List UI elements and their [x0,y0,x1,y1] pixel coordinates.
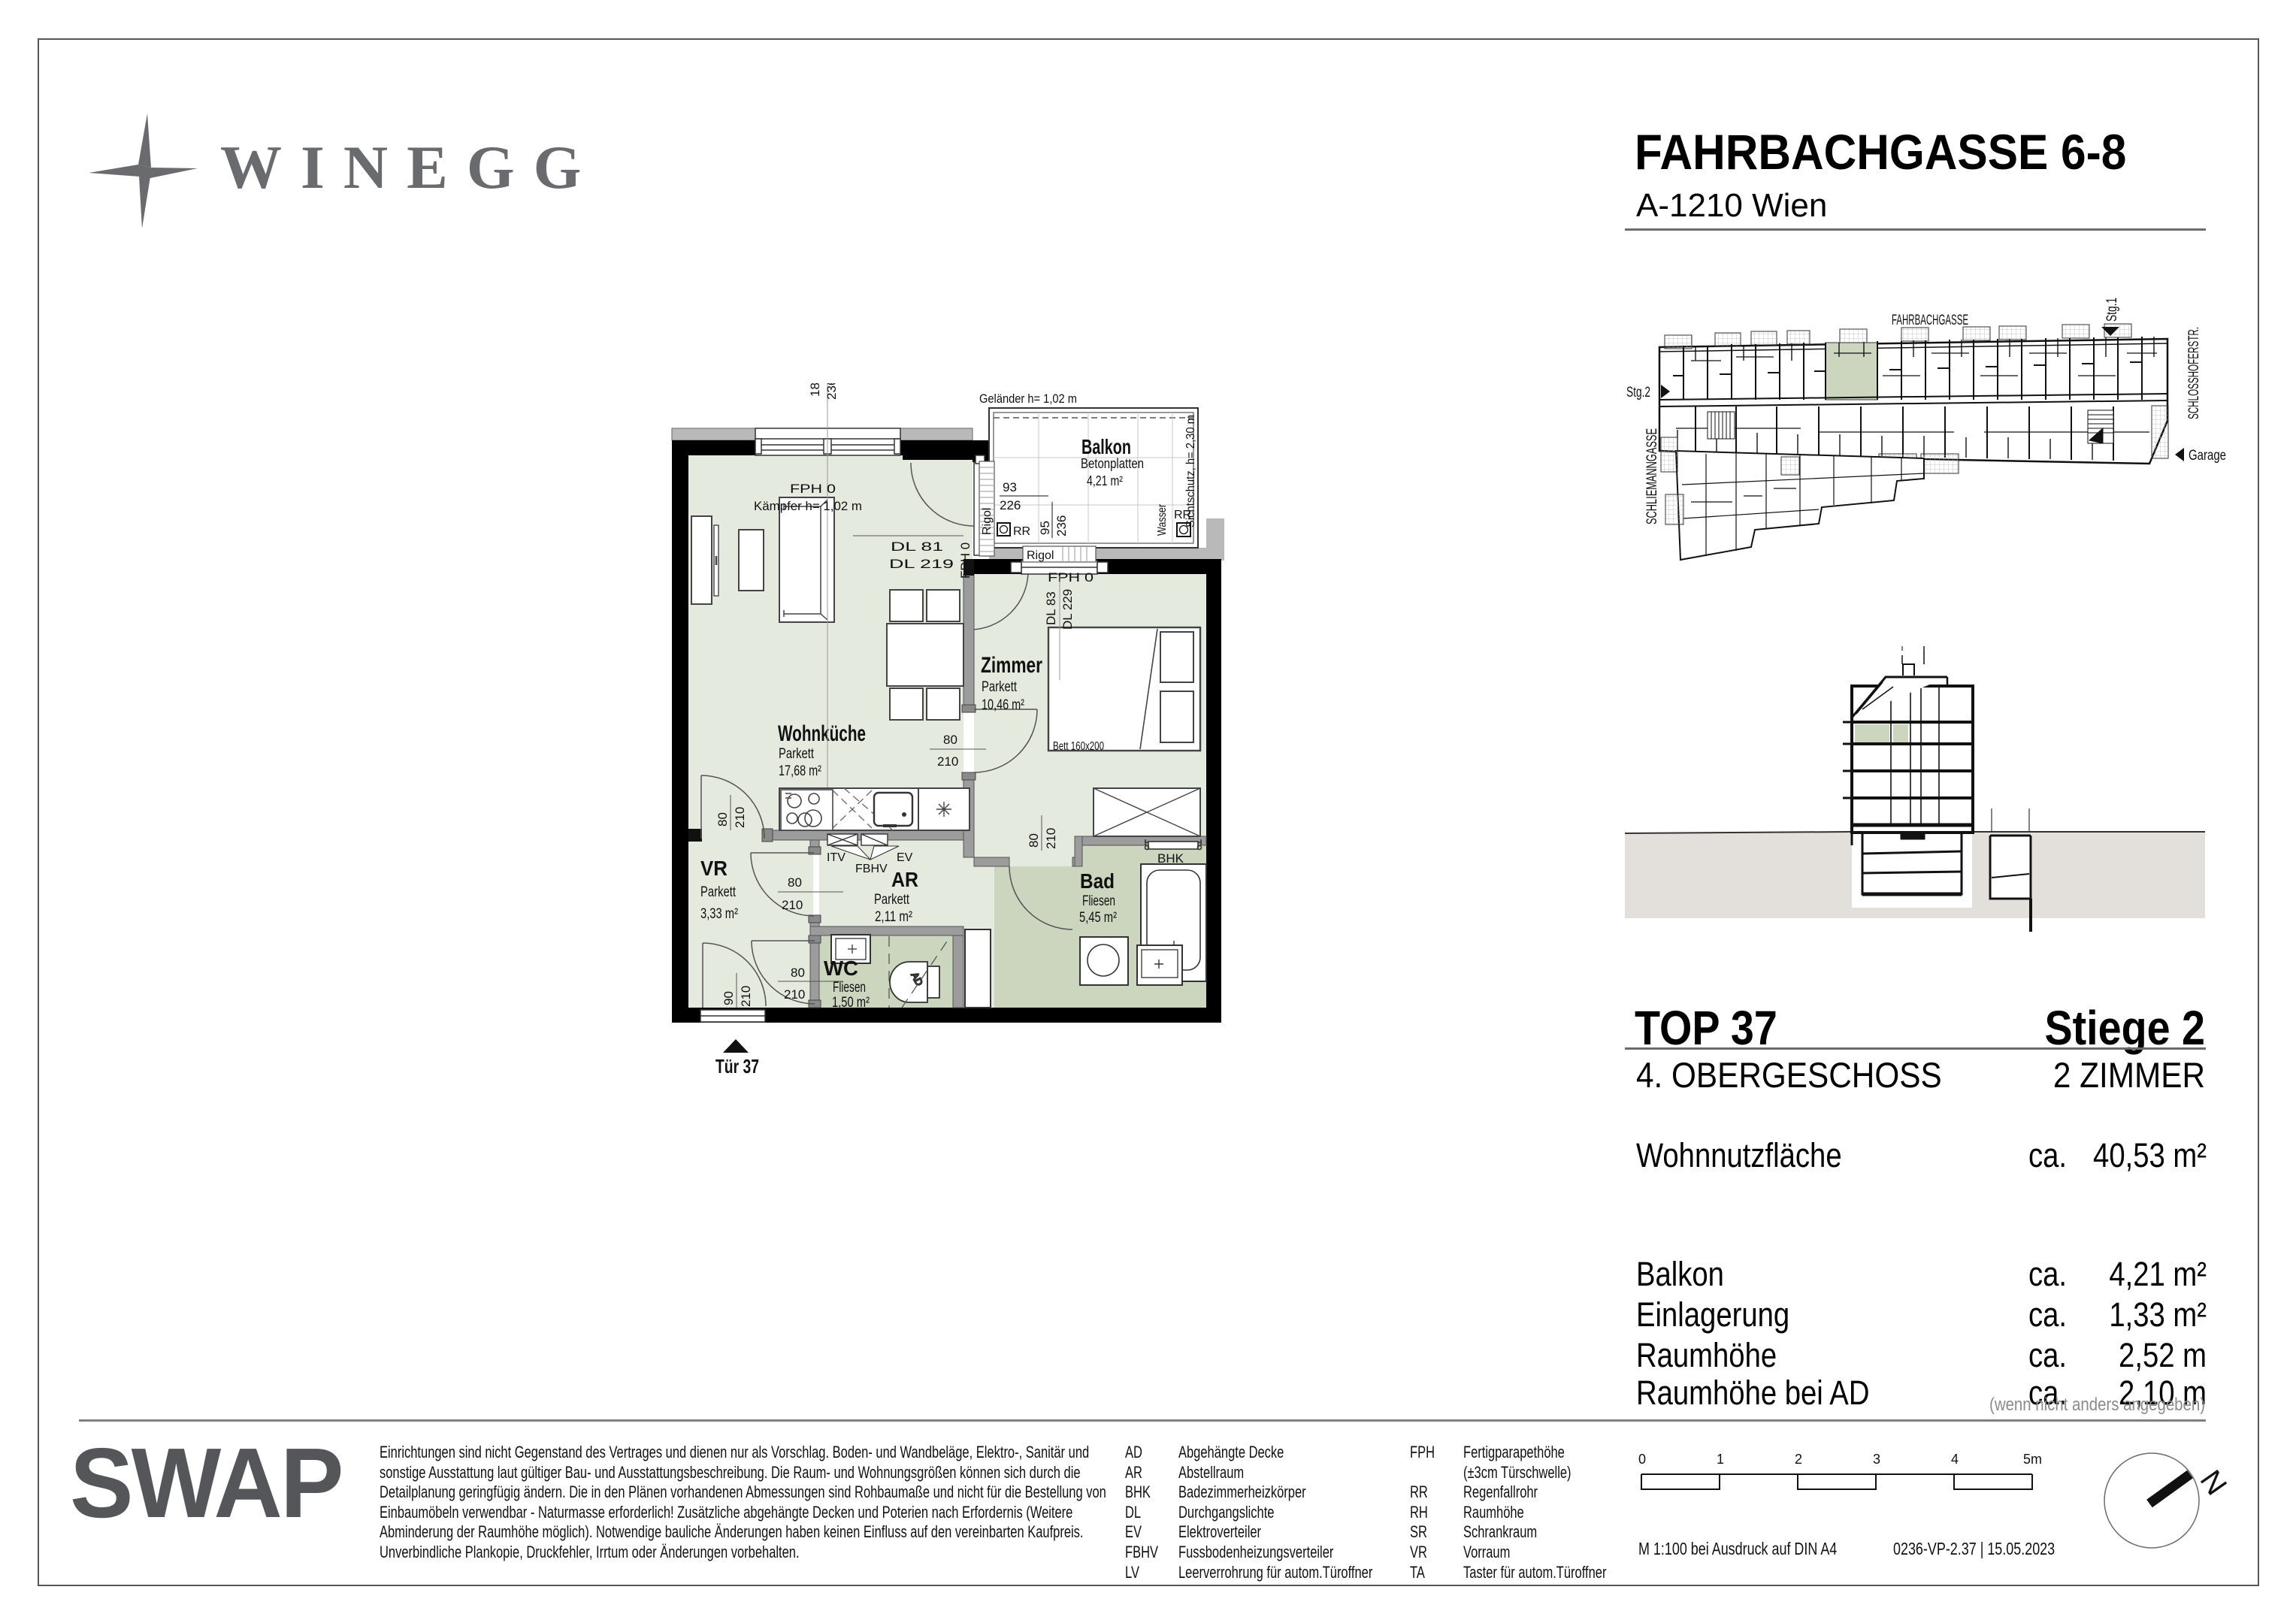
svg-text:2: 2 [1795,1452,1802,1467]
svg-text:210: 210 [784,987,805,1002]
svg-text:Betonplatten: Betonplatten [1081,456,1144,471]
svg-text:17,68 m²: 17,68 m² [779,763,821,779]
svg-text:Rigol: Rigol [1027,549,1054,562]
svg-text:Garage: Garage [2189,448,2226,464]
svg-text:210: 210 [1044,828,1058,849]
svg-text:FPH 0: FPH 0 [790,482,836,496]
svg-text:Bett 160x200: Bett 160x200 [1053,740,1104,753]
svg-text:Kämpfer h= 1,02 m: Kämpfer h= 1,02 m [754,499,862,513]
svg-text:2,11 m²: 2,11 m² [875,909,912,925]
svg-text:90: 90 [721,991,736,1005]
svg-text:1: 1 [1717,1452,1724,1467]
svg-text:226: 226 [1000,498,1021,512]
svg-text:Stg.1: Stg.1 [2104,298,2120,322]
svg-text:Stg.2: Stg.2 [1626,385,1650,400]
svg-text:Parkett: Parkett [700,884,737,900]
svg-text:236: 236 [1054,515,1069,536]
svg-text:Parkett: Parkett [982,679,1018,695]
svg-text:DL 83: DL 83 [1044,591,1058,625]
svg-text:3,33 m²: 3,33 m² [700,906,738,922]
svg-text:AR: AR [891,868,918,891]
svg-text:80: 80 [943,733,957,747]
svg-text:SCHLIEMANNGASSE: SCHLIEMANNGASSE [1644,428,1660,524]
svg-text:93: 93 [1003,480,1017,494]
svg-text:FPH 0: FPH 0 [1048,570,1094,585]
svg-text:210: 210 [733,807,747,828]
svg-text:1,50 m²: 1,50 m² [832,995,870,1011]
svg-text:3: 3 [1873,1452,1880,1467]
svg-text:184: 184 [808,383,822,397]
svg-text:Parkett: Parkett [874,892,910,908]
svg-text:Geländer h= 1,02 m: Geländer h= 1,02 m [979,391,1077,406]
svg-text:RR: RR [1013,525,1030,538]
svg-text:Wasser: Wasser [1156,503,1169,536]
svg-text:4,21 m²: 4,21 m² [1087,473,1123,488]
svg-text:N: N [2194,1464,2234,1501]
svg-text:0: 0 [1638,1452,1646,1467]
svg-text:5,45 m²: 5,45 m² [1079,910,1117,926]
svg-text:80: 80 [1027,833,1041,848]
svg-text:FPH 0: FPH 0 [958,543,973,579]
svg-text:Wohnküche: Wohnküche [778,721,866,746]
svg-text:WC: WC [824,957,858,980]
svg-text:Bad: Bad [1080,869,1115,893]
svg-text:Balkon: Balkon [1081,435,1131,458]
svg-text:95: 95 [1038,521,1052,535]
svg-text:Fliesen: Fliesen [833,980,866,996]
svg-text:80: 80 [788,875,802,890]
svg-text:DL 81: DL 81 [891,539,943,554]
svg-text:236: 236 [824,383,839,400]
svg-text:VR: VR [700,857,728,880]
svg-text:EV: EV [897,851,913,864]
svg-text:210: 210 [937,754,958,769]
svg-text:80: 80 [791,966,805,980]
svg-text:FAHRBACHGASSE: FAHRBACHGASSE [1892,313,1968,328]
svg-text:210: 210 [782,898,803,912]
svg-text:Parkett: Parkett [779,746,815,762]
svg-text:DL 229: DL 229 [1060,589,1075,630]
svg-text:ITV: ITV [827,851,845,864]
svg-text:80: 80 [715,812,730,827]
svg-text:4: 4 [1951,1452,1959,1467]
svg-text:FBHV: FBHV [855,863,888,875]
svg-text:Fliesen: Fliesen [1082,893,1115,909]
svg-text:5m: 5m [2023,1452,2042,1467]
svg-text:RR: RR [1174,509,1191,521]
svg-text:210: 210 [739,986,753,1007]
svg-text:10,46 m²: 10,46 m² [982,697,1024,713]
svg-text:Rigol: Rigol [981,508,994,535]
svg-text:SCHLOSSHOFERSTR.: SCHLOSSHOFERSTR. [2186,327,2202,419]
svg-text:Tür 37: Tür 37 [715,1055,759,1077]
svg-text:Zimmer: Zimmer [981,653,1042,678]
svg-text:DL 219: DL 219 [889,557,954,571]
